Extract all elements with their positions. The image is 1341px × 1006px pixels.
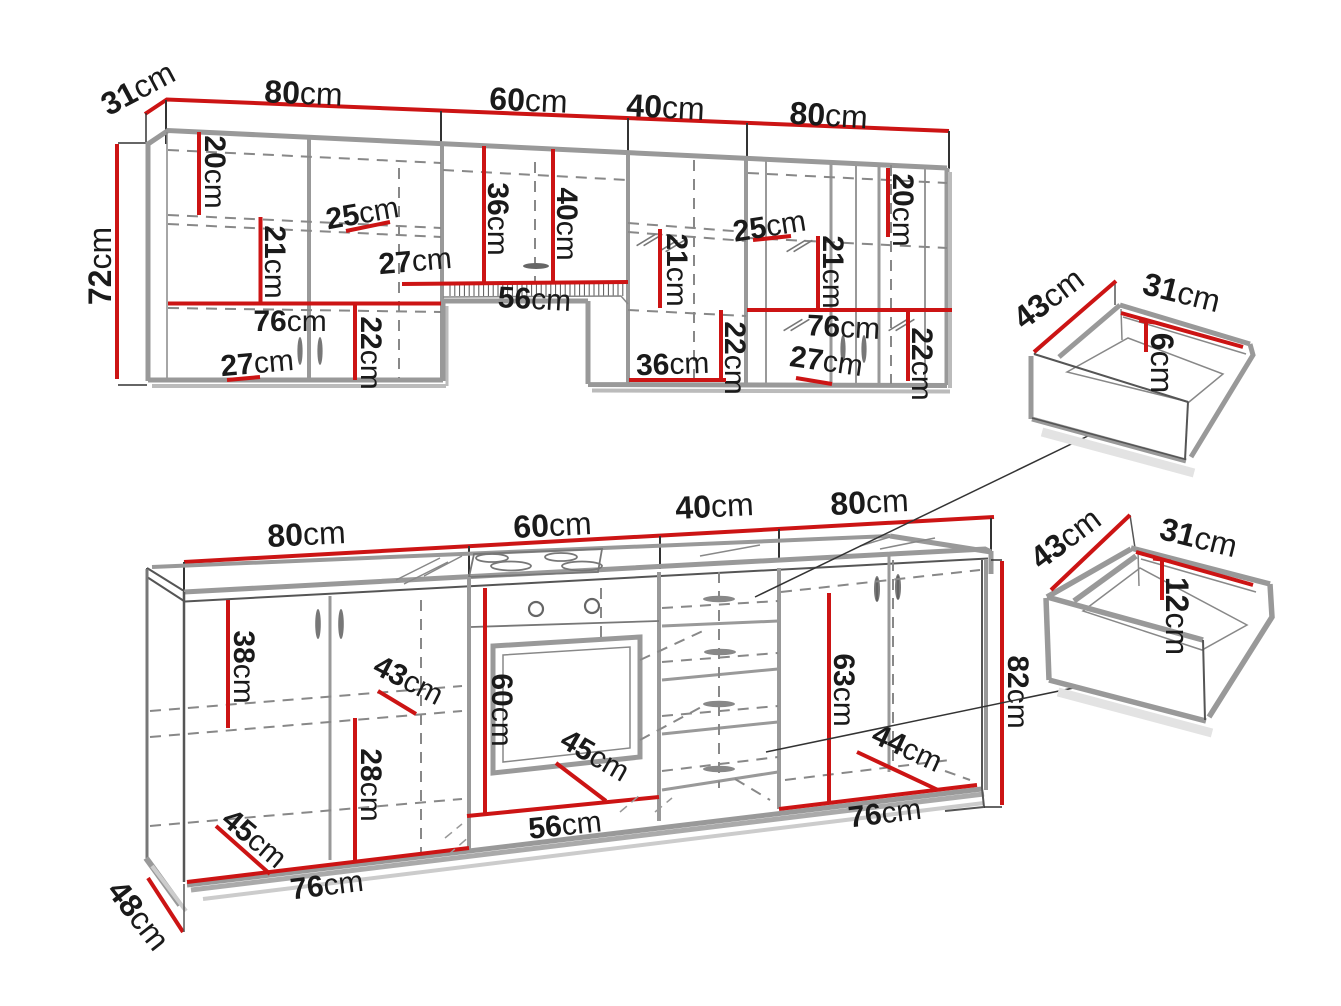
svg-text:82cm: 82cm [1001, 655, 1034, 728]
svg-text:6cm: 6cm [1144, 333, 1180, 393]
svg-text:27cm: 27cm [377, 242, 453, 281]
svg-text:27cm: 27cm [219, 344, 295, 383]
svg-text:21cm: 21cm [258, 225, 291, 298]
svg-text:40cm: 40cm [550, 187, 583, 260]
svg-text:60cm: 60cm [485, 673, 518, 746]
svg-text:38cm: 38cm [227, 630, 260, 703]
svg-text:40cm: 40cm [674, 486, 754, 526]
svg-text:22cm: 22cm [905, 327, 938, 400]
svg-text:21cm: 21cm [660, 233, 693, 306]
svg-text:20cm: 20cm [198, 135, 231, 208]
svg-text:80cm: 80cm [266, 514, 346, 554]
svg-text:72cm: 72cm [82, 227, 118, 305]
svg-text:22cm: 22cm [354, 316, 387, 389]
svg-text:12cm: 12cm [1159, 577, 1195, 655]
svg-text:63cm: 63cm [827, 653, 860, 726]
svg-text:36cm: 36cm [481, 182, 514, 255]
svg-text:40cm: 40cm [626, 87, 706, 127]
svg-text:56cm: 56cm [497, 281, 572, 318]
svg-text:60cm: 60cm [512, 505, 592, 545]
svg-text:22cm: 22cm [718, 321, 751, 394]
svg-text:60cm: 60cm [489, 80, 569, 119]
svg-text:76cm: 76cm [253, 305, 326, 338]
svg-text:80cm: 80cm [264, 73, 344, 112]
svg-text:80cm: 80cm [789, 95, 869, 136]
svg-text:21cm: 21cm [816, 235, 849, 308]
svg-text:28cm: 28cm [354, 748, 387, 821]
svg-text:20cm: 20cm [886, 173, 919, 246]
svg-text:80cm: 80cm [829, 482, 909, 522]
svg-text:36cm: 36cm [635, 347, 709, 383]
svg-text:76cm: 76cm [806, 309, 881, 346]
